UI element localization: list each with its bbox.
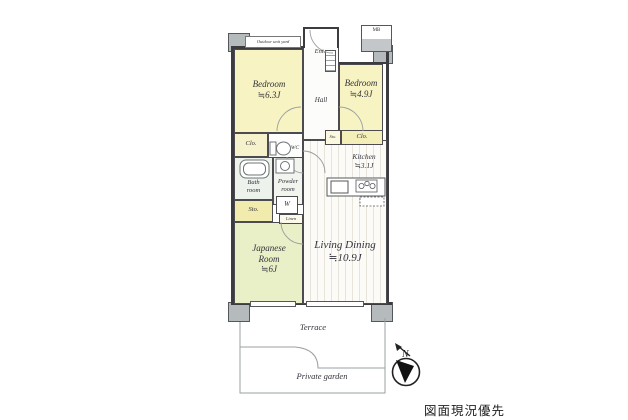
- compass-north-label: N: [401, 349, 410, 360]
- sink-icon: [331, 181, 348, 193]
- bathtub-icon: [240, 160, 269, 178]
- caption-drawing-priority: 図面現況優先: [424, 400, 505, 419]
- fixtures-layer: N: [0, 0, 628, 420]
- compass-icon: N: [393, 343, 420, 386]
- door-arc-icon: [277, 30, 363, 244]
- vanity-sink-icon: [276, 159, 294, 173]
- refrigerator-icon: [360, 197, 384, 206]
- garden-boundary: [240, 318, 385, 393]
- toilet-icon: [270, 142, 291, 155]
- floor-plan: N Bedroom ≒6.3J Bedroom ≒4.9J Hall Ent. …: [0, 0, 628, 420]
